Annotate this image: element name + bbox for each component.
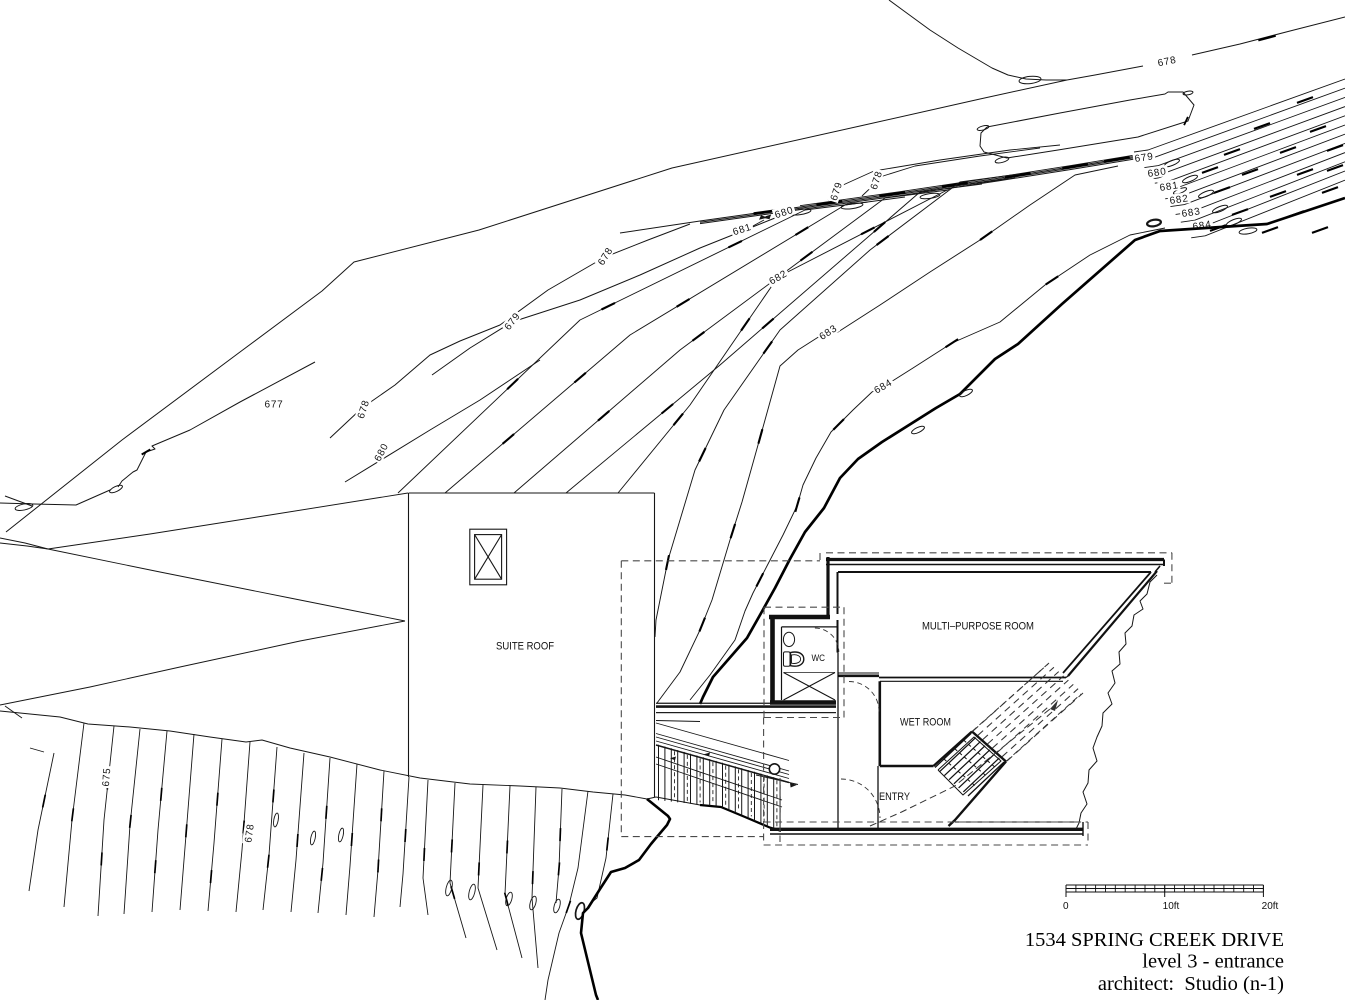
svg-text:1534 SPRING CREEK DRIVE: 1534 SPRING CREEK DRIVE: [1025, 929, 1284, 951]
svg-text:level 3 - entrance: level 3 - entrance: [1142, 951, 1284, 973]
svg-text:10ft: 10ft: [1163, 901, 1180, 912]
svg-text:SUITE ROOF: SUITE ROOF: [496, 641, 554, 653]
svg-text:WC: WC: [812, 653, 826, 664]
svg-text:WET ROOM: WET ROOM: [900, 717, 951, 729]
svg-text:677: 677: [264, 400, 283, 411]
svg-text:20ft: 20ft: [1262, 901, 1279, 912]
svg-text:architect: Studio (n-1): architect: Studio (n-1): [1098, 973, 1284, 995]
svg-text:675: 675: [101, 767, 113, 787]
svg-text:MULTI–PURPOSE ROOM: MULTI–PURPOSE ROOM: [922, 621, 1034, 633]
svg-text:0: 0: [1063, 901, 1069, 912]
svg-text:ENTRY: ENTRY: [879, 791, 911, 803]
